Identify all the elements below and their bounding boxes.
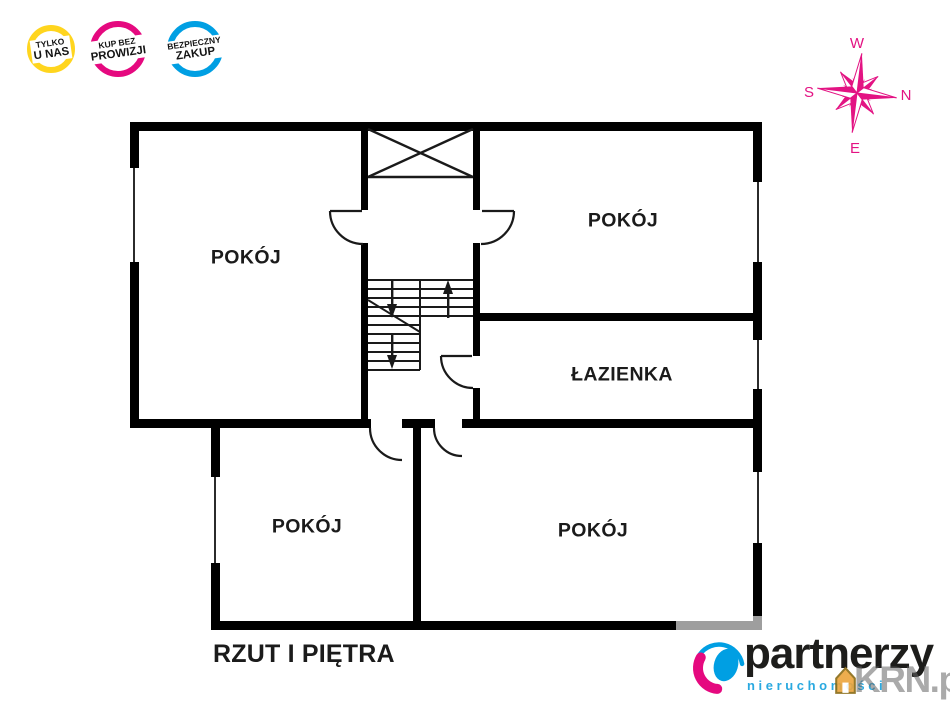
house-icon — [832, 664, 859, 697]
watermark: KRN.pl — [832, 662, 950, 697]
door-arc — [434, 428, 462, 456]
watermark-text: KRN.pl — [854, 662, 950, 697]
badge-tylko-u-nas: TYLKO U NAS — [27, 25, 75, 73]
door-arc — [370, 428, 402, 460]
door-arc — [441, 356, 473, 388]
room-label-top-right: POKÓJ — [588, 210, 658, 233]
logo-mark-icon — [691, 639, 749, 699]
room-label-bathroom: ŁAZIENKA — [571, 364, 673, 387]
room-label-top-left: POKÓJ — [211, 247, 281, 270]
plan-caption: RZUT I PIĘTRA — [213, 640, 395, 669]
room-label-bottom-left: POKÓJ — [272, 516, 342, 539]
floorplan-page: POKÓJ POKÓJ ŁAZIENKA POKÓJ POKÓJ RZUT I … — [0, 0, 950, 713]
room-label-bottom-right: POKÓJ — [558, 520, 628, 543]
badge-text: TYLKO U NAS — [30, 35, 73, 63]
compass-label-s: S — [804, 84, 814, 101]
badge-kup-bez-prowizji: KUP BEZ PROWIZJI — [90, 21, 146, 77]
badge-bezpieczny-zakup: BEZPIECZNY ZAKUP — [167, 21, 223, 77]
void-x-icon — [368, 129, 473, 177]
door-arc — [481, 211, 514, 244]
badge-text: BEZPIECZNY ZAKUP — [165, 34, 225, 65]
compass-label-w: W — [850, 35, 865, 52]
badge-text: KUP BEZ PROWIZJI — [87, 33, 149, 64]
compass-label-n: N — [901, 87, 912, 104]
door-arc — [330, 211, 363, 244]
compass-label-e: E — [850, 140, 860, 157]
compass-rose-icon: W N S E — [795, 26, 921, 158]
